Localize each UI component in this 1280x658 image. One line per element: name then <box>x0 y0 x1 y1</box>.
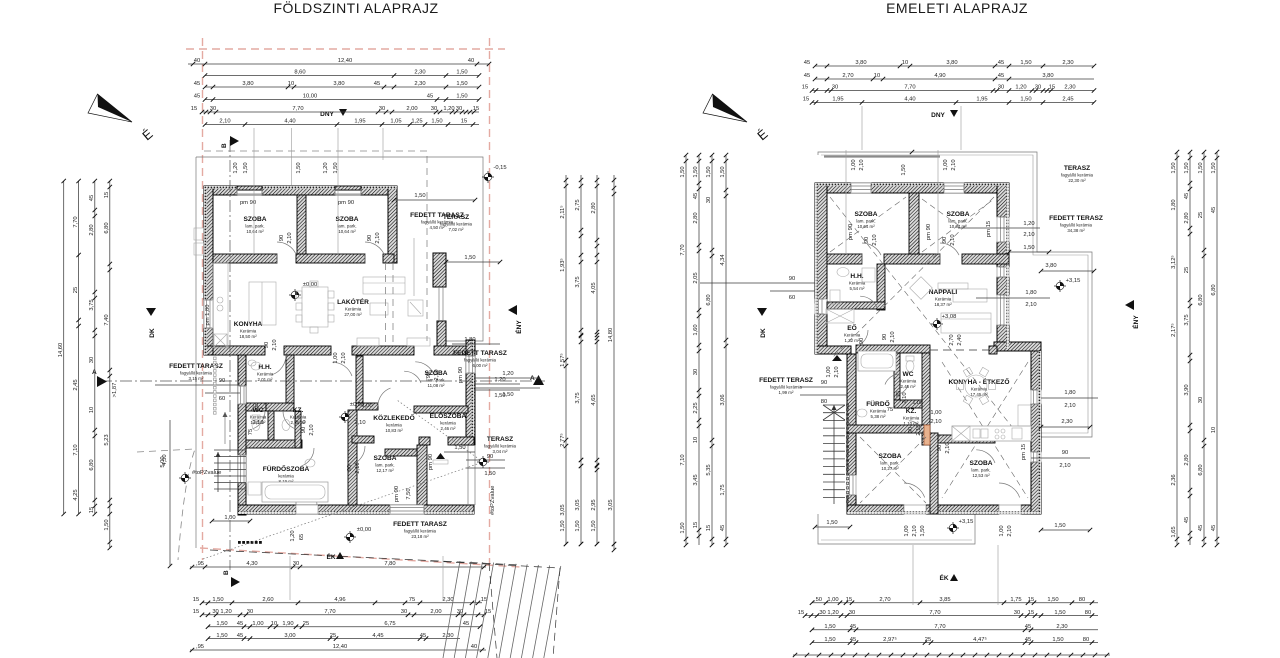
svg-text:fagyálló kerámia: fagyálló kerámia <box>770 385 803 390</box>
svg-text:30: 30 <box>706 197 712 203</box>
svg-text:6,80: 6,80 <box>104 222 110 233</box>
svg-text:1,95: 1,95 <box>832 97 843 103</box>
svg-text:3,04 m²: 3,04 m² <box>493 449 508 454</box>
svg-text:90: 90 <box>301 427 307 433</box>
svg-text:3,90: 3,90 <box>1184 384 1190 395</box>
svg-text:10,00: 10,00 <box>303 94 318 100</box>
svg-text:10,83 m²: 10,83 m² <box>385 428 403 433</box>
svg-text:7,70: 7,70 <box>904 85 915 91</box>
svg-text:1,99 m²: 1,99 m² <box>779 390 794 395</box>
svg-text:2,05: 2,05 <box>693 272 699 283</box>
svg-text:90: 90 <box>487 454 493 460</box>
svg-text:90: 90 <box>937 445 943 451</box>
svg-text:4,65: 4,65 <box>591 394 597 405</box>
svg-text:3,85: 3,85 <box>939 597 950 603</box>
svg-text:90: 90 <box>264 342 270 348</box>
svg-text:90: 90 <box>821 380 827 386</box>
svg-text:6,00 m²: 6,00 m² <box>473 363 488 368</box>
svg-text:14,60: 14,60 <box>58 343 64 358</box>
svg-text:FEDETT TARASZ: FEDETT TARASZ <box>393 521 447 528</box>
svg-text:11,08 m²: 11,08 m² <box>427 383 445 388</box>
svg-text:pm 90: pm 90 <box>458 367 464 383</box>
svg-text:TERASZ: TERASZ <box>1064 165 1090 172</box>
svg-text:45: 45 <box>374 81 380 87</box>
svg-text:,95: ,95 <box>196 561 204 567</box>
svg-text:3,75: 3,75 <box>575 392 581 403</box>
svg-text:Kerámia: Kerámia <box>849 281 866 286</box>
svg-text:45: 45 <box>1025 624 1031 630</box>
svg-text:,50: ,50 <box>814 597 822 603</box>
svg-text:KÖZLEKEDŐ: KÖZLEKEDŐ <box>373 413 414 422</box>
svg-text:30: 30 <box>431 106 437 112</box>
svg-text:1,00: 1,00 <box>252 621 263 627</box>
svg-text:2,10: 2,10 <box>890 331 896 342</box>
svg-text:14,80: 14,80 <box>608 328 614 343</box>
svg-text:75: 75 <box>887 407 893 413</box>
svg-text:pm 15: pm 15 <box>1021 444 1027 460</box>
svg-text:1,75: 1,75 <box>1010 597 1021 603</box>
svg-text:6,75: 6,75 <box>384 621 395 627</box>
svg-text:Kerámia: Kerámia <box>257 372 274 377</box>
svg-text:1,50: 1,50 <box>693 166 699 177</box>
svg-text:Kerámia: Kerámia <box>870 409 887 414</box>
svg-text:2,70: 2,70 <box>879 597 890 603</box>
svg-text:6,80: 6,80 <box>706 294 712 305</box>
svg-text:45: 45 <box>850 637 856 643</box>
svg-text:2,80: 2,80 <box>591 202 597 213</box>
svg-text:Kerámia: Kerámia <box>345 307 362 312</box>
svg-text:2,10: 2,10 <box>916 424 922 435</box>
svg-text:1,95: 1,95 <box>354 119 365 125</box>
svg-text:15: 15 <box>803 97 809 103</box>
svg-text:DK: DK <box>149 328 156 338</box>
svg-text:1,50: 1,50 <box>680 166 686 177</box>
svg-text:45: 45 <box>420 633 426 639</box>
svg-text:1,80: 1,80 <box>464 337 475 343</box>
svg-text:30: 30 <box>293 561 299 567</box>
svg-text:#toPZvalue: #toPZvalue <box>490 486 496 515</box>
svg-text:45: 45 <box>720 525 726 531</box>
svg-text:1,50: 1,50 <box>502 392 513 398</box>
svg-text:2,10: 2,10 <box>945 442 951 453</box>
svg-text:1,20: 1,20 <box>323 162 329 173</box>
svg-text:45: 45 <box>804 60 810 66</box>
svg-text:7,70: 7,70 <box>324 609 335 615</box>
svg-text:2,30: 2,30 <box>414 81 425 87</box>
svg-text:45: 45 <box>237 633 243 639</box>
svg-text:7,70: 7,70 <box>680 244 686 255</box>
svg-text:1,75: 1,75 <box>720 484 726 495</box>
svg-text:,95: ,95 <box>196 644 204 650</box>
svg-text:1,50: 1,50 <box>1211 162 1217 173</box>
svg-text:1,65: 1,65 <box>1171 526 1177 537</box>
svg-text:15: 15 <box>191 106 197 112</box>
svg-text:4,40: 4,40 <box>284 119 295 125</box>
svg-text:1,95: 1,95 <box>976 97 987 103</box>
svg-text:5,54 m²: 5,54 m² <box>850 286 865 291</box>
svg-text:1,50: 1,50 <box>1198 162 1204 173</box>
svg-text:22,30 m²: 22,30 m² <box>1068 178 1086 183</box>
svg-text:45: 45 <box>427 94 433 100</box>
svg-text:KZ.: KZ. <box>906 408 917 415</box>
svg-text:1,50: 1,50 <box>560 520 566 531</box>
svg-text:fagyálló kerámia: fagyálló kerámia <box>1060 223 1093 228</box>
svg-text:7,10: 7,10 <box>73 444 79 455</box>
svg-text:5,00: 5,00 <box>160 456 166 467</box>
svg-text:7,10: 7,10 <box>680 454 686 465</box>
svg-text:1,50: 1,50 <box>216 633 227 639</box>
svg-text:1,20: 1,20 <box>233 162 239 173</box>
svg-text:1,50: 1,50 <box>824 637 835 643</box>
svg-text:1,93⁵: 1,93⁵ <box>559 258 566 272</box>
svg-text:1,32 m²: 1,32 m² <box>845 338 860 343</box>
svg-text:10: 10 <box>288 81 294 87</box>
svg-text:#toPZvalue: #toPZvalue <box>192 470 221 476</box>
svg-text:2,70: 2,70 <box>842 73 853 79</box>
svg-text:2,46 m²: 2,46 m² <box>441 426 456 431</box>
svg-text:1,50: 1,50 <box>706 166 712 177</box>
svg-text:45: 45 <box>1198 525 1204 531</box>
svg-text:3,75: 3,75 <box>575 276 581 287</box>
svg-text:Kerámia: Kerámia <box>903 416 920 421</box>
svg-text:pm 90: pm 90 <box>848 224 854 240</box>
svg-text:3,80: 3,80 <box>333 81 344 87</box>
svg-text:25: 25 <box>330 633 336 639</box>
svg-text:7,40: 7,40 <box>104 314 110 325</box>
svg-text:Kerámia: Kerámia <box>971 387 988 392</box>
svg-text:ÉK: ÉK <box>326 552 335 561</box>
svg-text:2,77⁵: 2,77⁵ <box>559 433 566 447</box>
svg-text:45: 45 <box>998 60 1004 66</box>
svg-text:2,10: 2,10 <box>1064 403 1075 409</box>
svg-text:15: 15 <box>1028 610 1034 616</box>
svg-text:34,38 m²: 34,38 m² <box>1067 228 1085 233</box>
svg-text:90: 90 <box>426 372 432 378</box>
svg-text:2,10: 2,10 <box>219 119 230 125</box>
svg-text:40: 40 <box>194 58 200 64</box>
svg-text:4,25: 4,25 <box>73 489 79 500</box>
svg-text:1,00: 1,00 <box>851 159 857 170</box>
svg-text:30: 30 <box>247 609 253 615</box>
svg-text:fagyálló kerámia: fagyálló kerámia <box>180 371 213 376</box>
svg-text:4,96: 4,96 <box>334 597 345 603</box>
svg-text:1,20: 1,20 <box>290 530 296 541</box>
svg-text:2,10: 2,10 <box>951 159 957 170</box>
svg-text:3,15 m²: 3,15 m² <box>189 376 204 381</box>
svg-text:1,25: 1,25 <box>411 119 422 125</box>
svg-text:80: 80 <box>821 399 827 405</box>
svg-text:3,80: 3,80 <box>946 60 957 66</box>
svg-text:2,10: 2,10 <box>1059 463 1070 469</box>
svg-text:3,05: 3,05 <box>608 499 614 510</box>
svg-text:90: 90 <box>1062 450 1068 456</box>
svg-text:80: 80 <box>1085 610 1091 616</box>
svg-text:2,00: 2,00 <box>430 609 441 615</box>
svg-text:2,30: 2,30 <box>1056 624 1067 630</box>
svg-text:30: 30 <box>456 106 462 112</box>
svg-text:2,80: 2,80 <box>89 224 95 235</box>
svg-text:45: 45 <box>463 621 469 627</box>
svg-text:KONYHA: KONYHA <box>234 321 263 328</box>
svg-text:10: 10 <box>1211 427 1217 433</box>
svg-text:2,10: 2,10 <box>859 159 865 170</box>
svg-text:1,50: 1,50 <box>104 519 110 530</box>
svg-text:2,10: 2,10 <box>287 232 293 243</box>
svg-text:45: 45 <box>804 73 810 79</box>
svg-text:SZOBA: SZOBA <box>373 455 396 462</box>
svg-text:pm 1,80: pm 1,80 <box>205 305 211 326</box>
svg-text:1,57⁵: 1,57⁵ <box>559 353 566 367</box>
svg-text:1,50: 1,50 <box>216 621 227 627</box>
svg-text:45: 45 <box>1184 517 1190 523</box>
svg-text:fagyálló kerámia: fagyálló kerámia <box>440 222 473 227</box>
svg-text:60: 60 <box>789 295 795 301</box>
svg-text:1,50: 1,50 <box>720 166 726 177</box>
svg-text:1,50: 1,50 <box>575 520 581 531</box>
svg-text:ÉNY: ÉNY <box>1131 315 1140 329</box>
svg-text:ÉK: ÉK <box>939 573 948 582</box>
svg-text:4,47⁵: 4,47⁵ <box>973 636 987 643</box>
svg-text:pm 90: pm 90 <box>240 200 256 206</box>
svg-text:30: 30 <box>1198 397 1204 403</box>
svg-text:FEDETT TERASZ: FEDETT TERASZ <box>1049 215 1103 222</box>
svg-text:12,17 m²: 12,17 m² <box>376 468 394 473</box>
svg-text:30: 30 <box>401 609 407 615</box>
svg-text:lam. park.: lam. park. <box>948 219 967 224</box>
svg-text:2,70: 2,70 <box>949 334 955 345</box>
svg-text:3,75: 3,75 <box>1184 314 1190 325</box>
svg-text:pm 90: pm 90 <box>428 454 434 470</box>
svg-text:Kerámia: Kerámia <box>935 297 952 302</box>
svg-text:1,50: 1,50 <box>826 520 837 526</box>
svg-text:3,06: 3,06 <box>720 394 726 405</box>
svg-text:12,40: 12,40 <box>338 58 353 64</box>
svg-text:lam. park.: lam. park. <box>375 463 394 468</box>
svg-text:1,50: 1,50 <box>1020 60 1031 66</box>
svg-text:2,10: 2,10 <box>272 339 278 350</box>
svg-text:1,50: 1,50 <box>456 81 467 87</box>
svg-text:5,35: 5,35 <box>706 464 712 475</box>
svg-text:45: 45 <box>693 193 699 199</box>
svg-text:2,10: 2,10 <box>355 462 361 473</box>
svg-text:2,10: 2,10 <box>1007 525 1013 536</box>
svg-text:B: B <box>223 570 230 575</box>
svg-text:4,40: 4,40 <box>904 97 915 103</box>
svg-text:kerámia: kerámia <box>386 423 402 428</box>
svg-text:SZOBA: SZOBA <box>946 211 969 218</box>
svg-text:4,05: 4,05 <box>591 282 597 293</box>
svg-text:5,38 m²: 5,38 m² <box>871 414 886 419</box>
svg-text:Kerámia: Kerámia <box>900 379 917 384</box>
svg-text:fagyálló kerámia: fagyálló kerámia <box>1061 173 1094 178</box>
svg-text:25: 25 <box>1198 212 1204 218</box>
svg-text:15: 15 <box>193 609 199 615</box>
svg-text:15: 15 <box>693 522 699 528</box>
svg-text:2,36: 2,36 <box>1171 474 1177 485</box>
svg-text:1,80: 1,80 <box>1025 290 1036 296</box>
svg-text:EŐ: EŐ <box>847 323 857 332</box>
svg-text:15: 15 <box>89 507 95 513</box>
svg-text:2,97⁵: 2,97⁵ <box>883 636 897 643</box>
svg-text:3,12⁵: 3,12⁵ <box>1170 255 1177 269</box>
svg-text:EMELETI ALAPRAJZ: EMELETI ALAPRAJZ <box>886 0 1028 16</box>
svg-text:30: 30 <box>1014 610 1020 616</box>
svg-text:6,80: 6,80 <box>89 459 95 470</box>
svg-text:15: 15 <box>1028 597 1034 603</box>
svg-text:90: 90 <box>882 334 888 340</box>
svg-text:27,00 m²: 27,00 m² <box>344 312 362 317</box>
svg-text:1,50: 1,50 <box>824 624 835 630</box>
svg-text:2,30: 2,30 <box>1064 85 1075 91</box>
svg-text:7,02 m²: 7,02 m² <box>449 227 464 232</box>
svg-text:40: 40 <box>468 58 474 64</box>
svg-text:2,10: 2,10 <box>1025 302 1036 308</box>
svg-text:1,50: 1,50 <box>1054 610 1065 616</box>
svg-text:pm 90: pm 90 <box>926 224 932 240</box>
svg-text:15: 15 <box>1049 85 1055 91</box>
svg-text:2,10: 2,10 <box>1023 232 1034 238</box>
svg-text:Kerámia: Kerámia <box>290 415 307 420</box>
svg-text:30: 30 <box>693 369 699 375</box>
svg-text:fagyálló kerámia: fagyálló kerámia <box>464 358 497 363</box>
svg-text:1,50: 1,50 <box>1184 162 1190 173</box>
svg-text:1,00: 1,00 <box>999 525 1005 536</box>
svg-text:SZOBA: SZOBA <box>854 211 877 218</box>
svg-text:2,10: 2,10 <box>872 234 878 245</box>
svg-text:45: 45 <box>1184 193 1190 199</box>
svg-text:75: 75 <box>409 597 415 603</box>
svg-text:15: 15 <box>473 106 479 112</box>
svg-text:2,10: 2,10 <box>294 420 305 426</box>
svg-text:1,20: 1,20 <box>502 371 513 377</box>
svg-text:2,10: 2,10 <box>834 366 840 377</box>
svg-text:15: 15 <box>485 609 491 615</box>
svg-text:2,30: 2,30 <box>414 70 425 76</box>
svg-text:6,80: 6,80 <box>1198 294 1204 305</box>
svg-text:8,60: 8,60 <box>294 70 305 76</box>
svg-text:45: 45 <box>998 73 1004 79</box>
svg-text:15: 15 <box>461 119 467 125</box>
svg-text:1,50: 1,50 <box>464 255 475 261</box>
svg-text:1,00: 1,00 <box>827 597 838 603</box>
svg-text:2,80: 2,80 <box>1184 454 1190 465</box>
svg-text:7,70: 7,70 <box>292 106 303 112</box>
svg-text:1,50: 1,50 <box>431 119 442 125</box>
svg-text:4,45: 4,45 <box>372 633 383 639</box>
svg-text:45: 45 <box>194 94 200 100</box>
svg-text:1,50: 1,50 <box>591 520 597 531</box>
svg-text:12,53 m²: 12,53 m² <box>972 473 990 478</box>
svg-text:10: 10 <box>902 60 908 66</box>
svg-text:4,90: 4,90 <box>934 73 945 79</box>
svg-text:-0,15: -0,15 <box>493 165 506 171</box>
svg-text:Kerámia: Kerámia <box>240 329 257 334</box>
svg-text:15: 15 <box>798 610 804 616</box>
svg-text:3,05: 3,05 <box>575 499 581 510</box>
svg-text:1,50: 1,50 <box>901 164 907 175</box>
svg-text:2,80: 2,80 <box>693 212 699 223</box>
svg-text:1,00: 1,00 <box>333 352 339 363</box>
svg-text:65: 65 <box>299 534 305 540</box>
svg-text:4,30: 4,30 <box>246 561 257 567</box>
svg-text:7,70: 7,70 <box>934 624 945 630</box>
svg-text:30: 30 <box>379 106 385 112</box>
svg-text:90: 90 <box>367 235 373 241</box>
svg-text:WC: WC <box>903 371 914 378</box>
svg-text:25: 25 <box>73 287 79 293</box>
svg-text:2,10: 2,10 <box>375 232 381 243</box>
svg-text:2,30: 2,30 <box>1061 419 1072 425</box>
svg-text:25: 25 <box>925 637 931 643</box>
svg-text:fagyálló kerámia: fagyálló kerámia <box>404 529 437 534</box>
svg-text:1,80: 1,80 <box>1171 199 1177 210</box>
svg-text:18,37 m²: 18,37 m² <box>934 302 952 307</box>
svg-text:2,45: 2,45 <box>73 379 79 390</box>
svg-text:1,50: 1,50 <box>1054 523 1065 529</box>
svg-text:>1,87: >1,87 <box>112 383 118 398</box>
svg-text:1,00: 1,00 <box>930 410 941 416</box>
svg-text:TERASZ: TERASZ <box>487 436 513 443</box>
svg-text:fagyálló kerámia: fagyálló kerámia <box>484 444 517 449</box>
svg-text:1,50: 1,50 <box>414 193 425 199</box>
svg-text:kerámia: kerámia <box>440 421 456 426</box>
svg-text:7,70: 7,70 <box>73 216 79 227</box>
svg-text:6,80: 6,80 <box>1211 284 1217 295</box>
svg-text:1,00: 1,00 <box>904 525 910 536</box>
svg-text:7,50: 7,50 <box>406 488 412 499</box>
svg-text:45: 45 <box>237 621 243 627</box>
svg-text:ELŐSZOBA: ELŐSZOBA <box>430 411 467 420</box>
svg-text:90: 90 <box>347 465 353 471</box>
svg-text:3,80: 3,80 <box>1042 73 1053 79</box>
svg-text:FEDETT TARASZ: FEDETT TARASZ <box>453 350 507 357</box>
svg-text:12,40: 12,40 <box>333 644 348 650</box>
svg-text:45: 45 <box>89 195 95 201</box>
svg-text:15: 15 <box>846 597 852 603</box>
svg-text:2,60: 2,60 <box>262 597 273 603</box>
svg-text:2,10: 2,10 <box>930 419 941 425</box>
svg-text:90: 90 <box>864 237 870 243</box>
svg-text:1,50: 1,50 <box>1171 162 1177 173</box>
svg-text:2,17⁵: 2,17⁵ <box>1170 323 1177 337</box>
svg-text:45: 45 <box>850 624 856 630</box>
svg-text:+3,15: +3,15 <box>959 519 974 525</box>
svg-text:TERASZ: TERASZ <box>443 214 469 221</box>
svg-text:5,23: 5,23 <box>104 434 110 445</box>
svg-text:2,46 m²: 2,46 m² <box>901 384 916 389</box>
svg-text:1,50: 1,50 <box>1020 97 1031 103</box>
svg-text:KONYHA - ÉTKEZŐ: KONYHA - ÉTKEZŐ <box>949 377 1010 386</box>
svg-text:2,30: 2,30 <box>1062 60 1073 66</box>
svg-text:10: 10 <box>874 73 880 79</box>
svg-text:1,00: 1,00 <box>943 159 949 170</box>
svg-text:1,50: 1,50 <box>243 162 249 173</box>
svg-text:2,10: 2,10 <box>434 369 440 380</box>
svg-text:1,50: 1,50 <box>1023 245 1034 251</box>
svg-text:10,64 m²: 10,64 m² <box>246 229 264 234</box>
svg-text:10,64 m²: 10,64 m² <box>857 224 875 229</box>
svg-text:2,30: 2,30 <box>442 597 453 603</box>
svg-text:3,80: 3,80 <box>855 60 866 66</box>
svg-text:90: 90 <box>789 276 795 282</box>
svg-text:2,00: 2,00 <box>406 106 417 112</box>
svg-text:lam. park.: lam. park. <box>245 224 264 229</box>
svg-text:30: 30 <box>832 85 838 91</box>
svg-text:25: 25 <box>1184 267 1190 273</box>
svg-text:2,10: 2,10 <box>341 352 347 363</box>
svg-text:30 1,20: 30 1,20 <box>819 610 838 616</box>
svg-text:2,10: 2,10 <box>309 424 315 435</box>
